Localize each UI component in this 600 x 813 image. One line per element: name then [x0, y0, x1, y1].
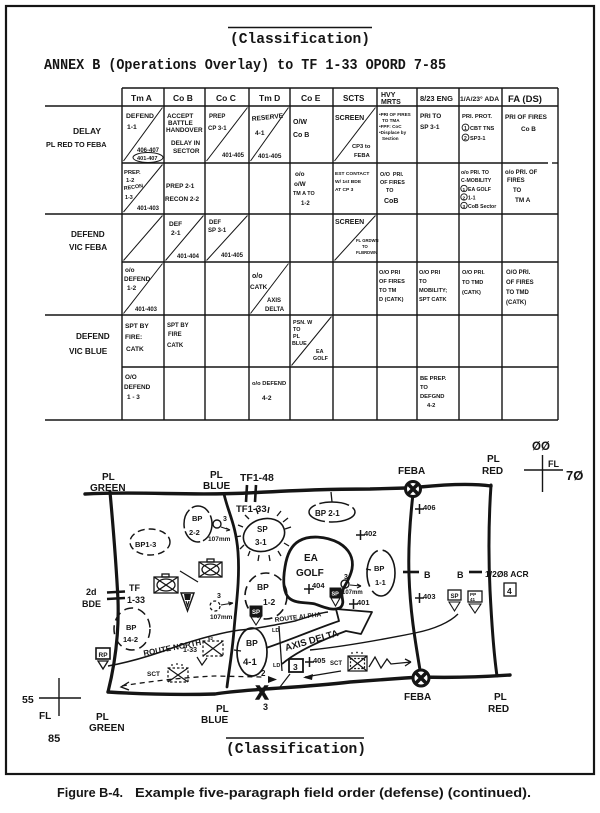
svg-text:405: 405	[313, 656, 326, 665]
svg-text:14-2: 14-2	[123, 635, 138, 644]
svg-text:•Displace by: •Displace by	[379, 130, 407, 135]
svg-text:BP: BP	[374, 564, 384, 573]
svg-text:CATK: CATK	[126, 346, 144, 353]
svg-text:HANDOVER: HANDOVER	[166, 127, 203, 134]
svg-text:BLUE: BLUE	[292, 341, 307, 347]
svg-text:DELAY IN: DELAY IN	[171, 140, 201, 147]
svg-text:GOLF: GOLF	[313, 356, 329, 362]
svg-text:DEFEND: DEFEND	[126, 113, 154, 120]
svg-text:CATK: CATK	[250, 284, 268, 291]
svg-text:7Ø: 7Ø	[566, 468, 583, 483]
svg-text:107mm: 107mm	[210, 614, 233, 621]
svg-text:404: 404	[312, 581, 325, 590]
svg-text:1-33: 1-33	[127, 595, 145, 605]
svg-text:SP: SP	[257, 525, 268, 534]
svg-text:RED: RED	[482, 466, 503, 477]
svg-text:CP3 to: CP3 to	[352, 144, 371, 150]
svg-text:1/2Ø8 ACR: 1/2Ø8 ACR	[485, 569, 529, 579]
svg-text:EA: EA	[316, 349, 324, 355]
svg-text:BP: BP	[257, 582, 269, 592]
svg-text:BP1-3: BP1-3	[135, 540, 156, 549]
svg-text:OF FIRES: OF FIRES	[380, 180, 405, 186]
svg-text:(Classification): (Classification)	[230, 32, 370, 48]
svg-text:DEF: DEF	[169, 221, 182, 228]
svg-text:o/o PRI. OF: o/o PRI. OF	[505, 170, 538, 176]
svg-text:B: B	[424, 570, 431, 580]
svg-text:SP: SP	[332, 592, 340, 598]
svg-text:EST CONTACT: EST CONTACT	[335, 171, 369, 177]
svg-text:3-1: 3-1	[255, 538, 267, 547]
svg-text:4-2: 4-2	[427, 403, 435, 409]
svg-text:406: 406	[423, 503, 436, 512]
svg-text:HVY: HVY	[381, 92, 396, 99]
svg-text:DEFEND: DEFEND	[71, 230, 105, 239]
svg-text:FIRE: FIRE	[168, 332, 182, 338]
svg-text:Co E: Co E	[301, 93, 321, 103]
svg-text:GREEN: GREEN	[90, 483, 126, 494]
svg-text:O/O PRI.: O/O PRI.	[462, 270, 485, 276]
svg-text:DEFEND: DEFEND	[76, 332, 110, 341]
svg-text:4-1: 4-1	[243, 657, 257, 668]
svg-text:SP 3-1: SP 3-1	[420, 124, 440, 131]
svg-text:402: 402	[364, 529, 377, 538]
svg-text:RP: RP	[99, 652, 109, 659]
svg-text:SECTOR: SECTOR	[173, 148, 200, 155]
svg-text:PRI. PROT.: PRI. PROT.	[462, 114, 492, 120]
svg-text:TF1-33: TF1-33	[236, 504, 267, 515]
svg-text:1-2: 1-2	[263, 597, 276, 607]
svg-text:SCREEN: SCREEN	[335, 219, 364, 226]
svg-text:EA GOLF: EA GOLF	[468, 187, 491, 193]
svg-text:RECON 2-2: RECON 2-2	[165, 196, 200, 203]
svg-text:o/o PRI. TO: o/o PRI. TO	[461, 170, 489, 176]
svg-text:FIRES: FIRES	[507, 178, 525, 184]
svg-text:1-2: 1-2	[301, 201, 310, 207]
svg-text:401-403: 401-403	[135, 307, 158, 313]
svg-text:O/O PRI: O/O PRI	[379, 270, 401, 276]
svg-text:VIC BLUE: VIC BLUE	[69, 347, 108, 356]
svg-text:CoB Sector: CoB Sector	[468, 204, 496, 210]
svg-text:BDE: BDE	[82, 599, 101, 609]
svg-text:VIC FEBA: VIC FEBA	[69, 243, 107, 252]
svg-text:MRTS: MRTS	[381, 99, 401, 106]
svg-text:DELAY: DELAY	[73, 126, 101, 136]
svg-text:(CATK): (CATK)	[506, 300, 526, 306]
svg-text:1-1: 1-1	[127, 124, 137, 131]
svg-text:1-33: 1-33	[183, 647, 197, 654]
svg-text:LD: LD	[273, 663, 280, 669]
svg-text:BLUE: BLUE	[203, 481, 231, 492]
svg-text:PL: PL	[494, 692, 507, 703]
svg-text:BP: BP	[126, 623, 136, 632]
svg-text:1-2: 1-2	[126, 178, 134, 184]
svg-text:CATK: CATK	[167, 343, 184, 349]
svg-text:401: 401	[357, 598, 370, 607]
svg-text:3: 3	[463, 204, 466, 210]
svg-text:SCTS: SCTS	[343, 94, 365, 103]
svg-text:W/ 1st BDE: W/ 1st BDE	[335, 179, 362, 185]
svg-text:DEF: DEF	[209, 220, 221, 226]
svg-text:(CATK): (CATK)	[462, 290, 481, 296]
svg-text:TO: TO	[293, 327, 300, 333]
svg-text:401-405: 401-405	[222, 153, 245, 159]
svg-text:FEBA: FEBA	[398, 466, 425, 477]
svg-text:2-2: 2-2	[189, 528, 200, 537]
svg-text:O/O: O/O	[125, 374, 137, 381]
svg-text:FL: FL	[39, 711, 51, 722]
svg-text:107mm: 107mm	[208, 536, 231, 543]
svg-text:OF FIRES: OF FIRES	[379, 279, 405, 285]
svg-text:DELTA: DELTA	[265, 307, 285, 313]
svg-text:C-MOBILITY: C-MOBILITY	[461, 178, 492, 184]
svg-text:AT CP 3: AT CP 3	[335, 187, 354, 193]
svg-text:ANNEX B (Operations Overlay) t: ANNEX B (Operations Overlay) to TF 1-33 …	[44, 58, 446, 74]
svg-text:FL GRDWN: FL GRDWN	[356, 238, 379, 243]
svg-text:CoB: CoB	[384, 198, 398, 205]
svg-text:PL RED TO FEBA: PL RED TO FEBA	[46, 140, 107, 149]
svg-text:DEFEND: DEFEND	[124, 276, 151, 283]
svg-text:TO TMD: TO TMD	[506, 290, 530, 296]
svg-text:52: 52	[208, 636, 214, 641]
svg-text:403: 403	[423, 592, 436, 601]
svg-text:BATTLE: BATTLE	[168, 120, 193, 127]
svg-text:2d: 2d	[86, 587, 97, 597]
svg-text:SPT BY: SPT BY	[167, 323, 189, 329]
svg-text:401-407: 401-407	[137, 156, 158, 162]
svg-text:TO: TO	[386, 188, 393, 194]
svg-text:PRI OF FIRES: PRI OF FIRES	[505, 114, 548, 121]
svg-text:PRI TO: PRI TO	[420, 113, 441, 120]
svg-text:41: 41	[470, 597, 476, 602]
svg-text:Co B: Co B	[521, 126, 536, 133]
svg-text:8/23 ENG: 8/23 ENG	[420, 94, 453, 103]
svg-text:4-1: 4-1	[255, 130, 265, 137]
svg-text:O/O PRI.: O/O PRI.	[506, 270, 531, 276]
svg-text:Co C: Co C	[216, 93, 236, 103]
svg-text:FL: FL	[548, 459, 559, 469]
svg-text:3: 3	[293, 662, 298, 672]
svg-text:PL: PL	[102, 472, 115, 483]
svg-text:PREP.: PREP.	[124, 170, 141, 176]
svg-text:TO: TO	[419, 279, 427, 285]
svg-text:DEFGND: DEFGND	[420, 394, 444, 400]
svg-text:TM A: TM A	[515, 197, 531, 204]
svg-text:SP 3-1: SP 3-1	[208, 228, 227, 234]
svg-text:GREEN: GREEN	[89, 723, 125, 734]
svg-text:DEFEND: DEFEND	[124, 384, 151, 391]
svg-text:401-405: 401-405	[221, 253, 244, 259]
svg-text:SCT: SCT	[330, 661, 342, 667]
svg-text:1/A/23° ADA: 1/A/23° ADA	[460, 95, 499, 103]
svg-text:TO: TO	[513, 188, 522, 194]
svg-text:TM A TO: TM A TO	[293, 191, 315, 197]
svg-text:107mm: 107mm	[342, 590, 363, 596]
svg-text:3: 3	[223, 516, 227, 523]
svg-text:O/O PRI.: O/O PRI.	[380, 172, 404, 178]
svg-text:PREP 2-1: PREP 2-1	[166, 183, 195, 190]
svg-text:PREP: PREP	[209, 114, 225, 120]
svg-text:1-3: 1-3	[125, 195, 133, 201]
svg-text:SPT BY: SPT BY	[125, 323, 149, 330]
svg-text:EA: EA	[304, 553, 318, 564]
svg-text:1-1: 1-1	[468, 196, 476, 202]
svg-text:CBT TNS: CBT TNS	[470, 126, 495, 132]
svg-text:TO TMA: TO TMA	[382, 118, 400, 123]
svg-text:ACCEPT: ACCEPT	[167, 113, 193, 120]
svg-text:3: 3	[263, 702, 268, 712]
svg-text:SCT: SCT	[147, 671, 160, 678]
svg-text:1-1: 1-1	[375, 578, 386, 587]
svg-text:FA (DS): FA (DS)	[508, 94, 542, 105]
svg-text:TO: TO	[362, 244, 368, 249]
svg-text:•FPF: CoC: •FPF: CoC	[379, 124, 402, 129]
svg-text:2-1: 2-1	[171, 230, 181, 237]
svg-text:o/o: o/o	[252, 273, 263, 280]
svg-text:o/W: o/W	[294, 181, 307, 188]
svg-text:BE PREP.: BE PREP.	[420, 376, 447, 382]
svg-text:O/O PRI: O/O PRI	[419, 270, 441, 276]
svg-text:1: 1	[463, 187, 466, 193]
svg-text:O/W: O/W	[293, 119, 307, 126]
svg-text:SP: SP	[451, 594, 459, 600]
svg-text:o/o: o/o	[125, 267, 135, 274]
svg-text:BLUE: BLUE	[201, 715, 229, 726]
svg-text:PSN. W: PSN. W	[293, 320, 313, 326]
svg-text:o/o: o/o	[295, 171, 305, 178]
svg-text:MOBILITY;: MOBILITY;	[419, 288, 447, 294]
svg-text:B: B	[457, 570, 464, 580]
svg-text:1: 1	[464, 126, 467, 132]
svg-text:Figure B-4.: Figure B-4.	[57, 786, 123, 800]
svg-text:2: 2	[261, 669, 266, 678]
svg-text:401-405: 401-405	[258, 153, 282, 160]
svg-text:4: 4	[507, 586, 512, 596]
svg-text:2: 2	[463, 196, 466, 202]
svg-text:ØØ: ØØ	[532, 441, 550, 453]
svg-text:FIRE:: FIRE:	[125, 334, 142, 341]
svg-text:CP 3-1: CP 3-1	[208, 126, 227, 132]
svg-text:Section: Section	[382, 136, 399, 141]
svg-text:BP: BP	[246, 638, 258, 648]
svg-text:PL: PL	[210, 470, 223, 481]
svg-text:TO TMD: TO TMD	[462, 280, 483, 286]
svg-text:TF: TF	[129, 583, 140, 593]
svg-text:1 - 3: 1 - 3	[127, 394, 140, 401]
svg-text:GOLF: GOLF	[296, 568, 324, 579]
svg-text:PL: PL	[96, 712, 109, 723]
svg-text:SCREEN: SCREEN	[335, 115, 364, 122]
svg-text:OF FIRES: OF FIRES	[506, 280, 534, 286]
svg-text:401-403: 401-403	[137, 206, 160, 212]
svg-text:FEBA: FEBA	[354, 153, 371, 159]
svg-text:PL: PL	[487, 454, 500, 465]
svg-text:(Classification): (Classification)	[226, 742, 366, 758]
svg-text:55: 55	[22, 694, 34, 706]
svg-text:Tm A: Tm A	[131, 93, 152, 103]
svg-text:4-2: 4-2	[262, 395, 272, 402]
svg-text:BP: BP	[192, 514, 202, 523]
svg-text:X: X	[256, 683, 268, 703]
svg-text:1-2: 1-2	[127, 285, 137, 292]
svg-text:SP: SP	[252, 610, 260, 616]
svg-text:TO TM: TO TM	[379, 288, 397, 294]
svg-text:FLBRDWN: FLBRDWN	[356, 250, 377, 255]
svg-text:PL: PL	[216, 704, 229, 715]
svg-text:85: 85	[48, 733, 60, 745]
svg-text:LD: LD	[272, 628, 279, 634]
svg-text:o/o DEFEND: o/o DEFEND	[252, 381, 286, 387]
svg-text:3: 3	[217, 593, 221, 600]
svg-text:Example five-paragraph field o: Example five-paragraph field order (defe…	[135, 786, 531, 800]
svg-text:TO: TO	[420, 385, 428, 391]
svg-text:BP 2-1: BP 2-1	[315, 509, 340, 518]
svg-text:Tm D: Tm D	[259, 93, 280, 103]
svg-text:D (CATK): D (CATK)	[379, 297, 404, 303]
svg-text:RED: RED	[488, 704, 509, 715]
svg-text:SP3-1: SP3-1	[470, 136, 486, 142]
svg-text:2: 2	[464, 136, 467, 142]
svg-text:TF1-48: TF1-48	[240, 472, 274, 484]
svg-text:PL: PL	[293, 334, 301, 340]
svg-text:Co B: Co B	[293, 132, 309, 139]
svg-text:•PRI OF FIRES: •PRI OF FIRES	[379, 112, 411, 117]
svg-text:FEBA: FEBA	[404, 692, 431, 703]
svg-text:401-404: 401-404	[177, 254, 200, 260]
svg-text:SPT CATK: SPT CATK	[419, 297, 447, 303]
svg-text:AXIS: AXIS	[267, 298, 281, 304]
svg-text:Co B: Co B	[173, 93, 193, 103]
